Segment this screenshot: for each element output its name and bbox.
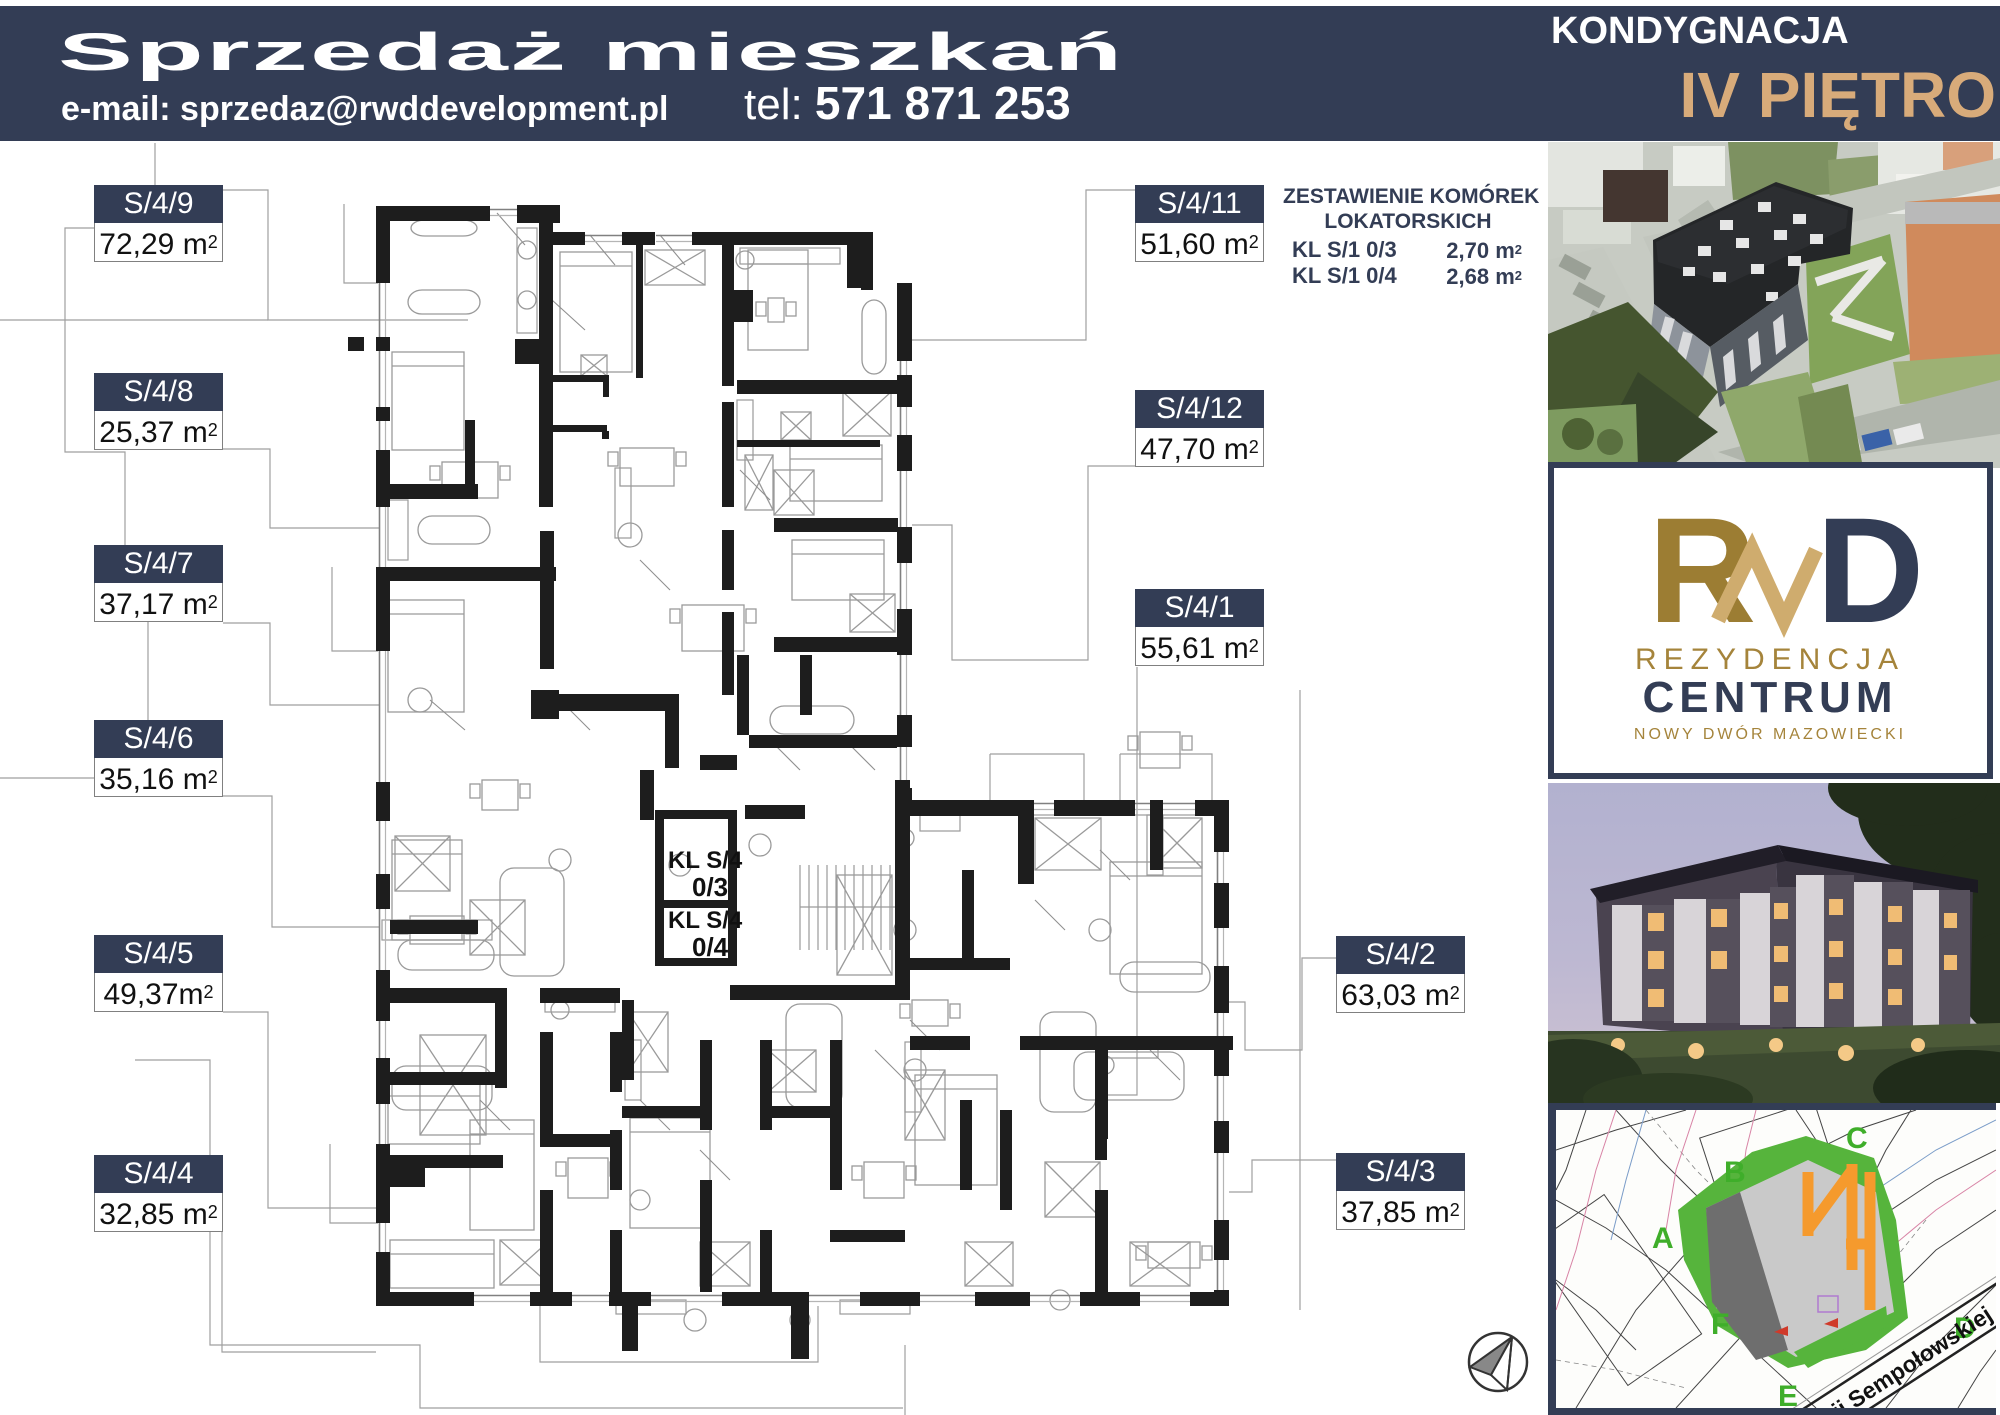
svg-text:E: E bbox=[1778, 1380, 1798, 1408]
svg-text:KL S/4: KL S/4 bbox=[668, 847, 743, 874]
svg-text:F: F bbox=[1711, 1308, 1729, 1341]
svg-text:CENTRUM: CENTRUM bbox=[1643, 673, 1898, 722]
svg-text:0/4: 0/4 bbox=[692, 932, 729, 962]
svg-text:C: C bbox=[1846, 1122, 1868, 1155]
svg-text:A: A bbox=[1652, 1222, 1674, 1255]
svg-text:NOWY DWÓR MAZOWIECKI: NOWY DWÓR MAZOWIECKI bbox=[1634, 724, 1906, 743]
svg-text:KL S/4: KL S/4 bbox=[668, 907, 743, 934]
svg-text:B: B bbox=[1724, 1156, 1746, 1189]
svg-text:0/3: 0/3 bbox=[692, 872, 728, 902]
svg-text:REZYDENCJA: REZYDENCJA bbox=[1635, 643, 1905, 676]
svg-text:D: D bbox=[1816, 486, 1924, 654]
